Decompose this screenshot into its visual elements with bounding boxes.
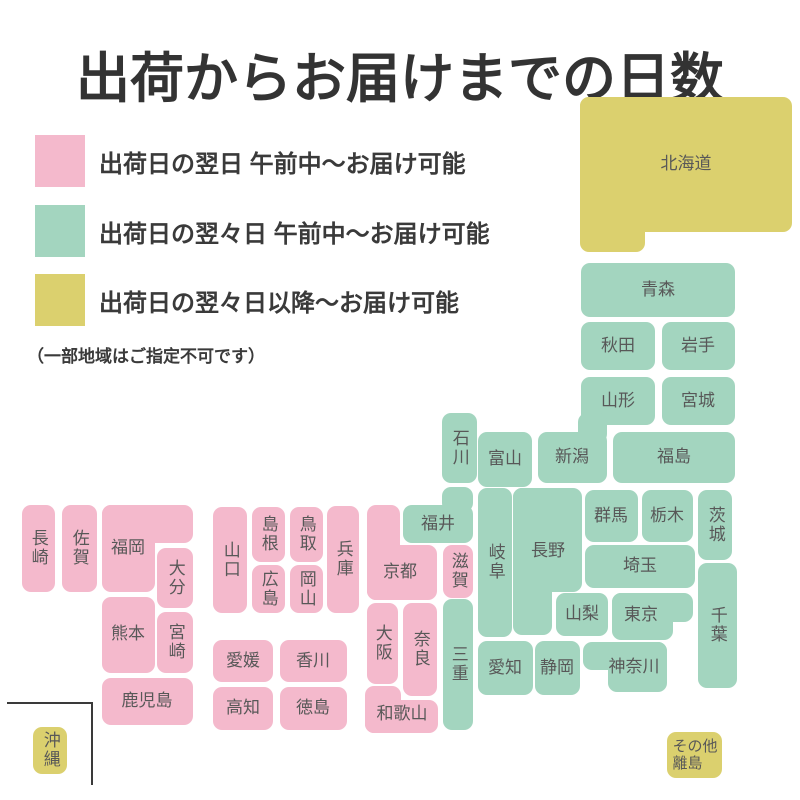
prefecture-tottori-label: 鳥取: [296, 515, 316, 553]
legend-label-two-days: 出荷日の翌々日 午前中〜お届け可能: [99, 214, 490, 249]
yellow-swatch-icon: [35, 274, 85, 326]
prefecture-nara-label: 奈良: [410, 630, 430, 668]
prefecture-kagoshima-label: 鹿児島: [122, 691, 173, 711]
prefecture-yamagata-label: 山形: [601, 391, 635, 411]
prefecture-hokkaido-shape: [580, 97, 645, 252]
prefecture-saga-label: 佐賀: [69, 529, 89, 567]
prefecture-ishikawa-label: 石川: [449, 429, 469, 467]
prefecture-mie-label: 三重: [448, 645, 468, 683]
prefecture-nagano-label: 長野: [531, 541, 565, 561]
shipping-days-infographic: 出荷からお届けまでの日数 出荷日の翌日 午前中〜お届け可能 出荷日の翌々日 午前…: [0, 0, 800, 800]
prefecture-ehime-label: 愛媛: [226, 651, 260, 671]
prefecture-tokushima-label: 徳島: [296, 698, 330, 718]
prefecture-akita-label: 秋田: [601, 336, 635, 356]
prefecture-iwate-label: 岩手: [681, 336, 715, 356]
prefecture-saitama-label: 埼玉: [623, 556, 657, 576]
legend-item-two-days-plus: 出荷日の翌々日以降〜お届け可能: [35, 274, 459, 326]
prefecture-hyogo-label: 兵庫: [333, 540, 353, 578]
legend-note: （一部地域はご指定不可です）: [27, 342, 265, 367]
prefecture-gunma-label: 群馬: [594, 506, 628, 526]
prefecture-hokkaido-label: 北海道: [661, 154, 712, 174]
prefecture-niigata-shape: [578, 413, 607, 443]
prefecture-ibaraki-label: 茨城: [705, 506, 725, 544]
prefecture-shizuoka-label: 静岡: [540, 658, 574, 678]
legend-label-two-days-plus: 出荷日の翌々日以降〜お届け可能: [99, 283, 459, 318]
prefecture-oita-label: 大分: [165, 559, 185, 597]
prefecture-fukui-shape: [442, 487, 473, 512]
prefecture-kanagawa-label: 神奈川: [609, 657, 660, 677]
prefecture-okayama-label: 岡山: [296, 570, 316, 608]
pink-swatch-icon: [35, 135, 85, 187]
prefecture-aichi-label: 愛知: [488, 658, 522, 678]
prefecture-aomori-label: 青森: [641, 280, 675, 300]
prefecture-fukuoka-label: 福岡: [111, 538, 145, 558]
prefecture-fukushima-label: 福島: [657, 447, 691, 467]
prefecture-hiroshima-label: 広島: [258, 570, 278, 608]
prefecture-fukui-label: 福井: [421, 514, 455, 534]
prefecture-nagano-shape: [513, 488, 552, 635]
prefecture-yamaguchi-label: 山口: [220, 541, 240, 579]
prefecture-shiga-label: 滋賀: [448, 552, 468, 590]
prefecture-gifu-label: 岐阜: [485, 543, 505, 581]
green-swatch-icon: [35, 205, 85, 257]
prefecture-miyazaki-label: 宮崎: [165, 623, 185, 661]
prefecture-other-islands-label: その他 離島: [672, 738, 717, 773]
prefecture-yamanashi-label: 山梨: [565, 604, 599, 624]
prefecture-toyama-label: 富山: [488, 449, 522, 469]
prefecture-nagasaki-label: 長崎: [28, 529, 48, 567]
okinawa-inset-frame: [7, 702, 93, 785]
prefecture-chiba-label: 千葉: [707, 606, 727, 644]
prefecture-osaka-label: 大阪: [372, 624, 392, 662]
prefecture-wakayama-label: 和歌山: [377, 704, 428, 724]
prefecture-kyoto-label: 京都: [383, 562, 417, 582]
prefecture-tokyo-label: 東京: [624, 605, 658, 625]
prefecture-kochi-label: 高知: [226, 698, 260, 718]
prefecture-miyagi-label: 宮城: [681, 391, 715, 411]
prefecture-tochigi-label: 栃木: [650, 506, 684, 526]
legend-label-next-day: 出荷日の翌日 午前中〜お届け可能: [99, 144, 466, 179]
legend-item-next-day: 出荷日の翌日 午前中〜お届け可能: [35, 135, 466, 187]
prefecture-shimane-label: 島根: [258, 515, 278, 553]
legend-item-two-days: 出荷日の翌々日 午前中〜お届け可能: [35, 205, 490, 257]
prefecture-niigata-label: 新潟: [555, 447, 589, 467]
prefecture-kagawa-label: 香川: [296, 651, 330, 671]
prefecture-kumamoto-label: 熊本: [111, 624, 145, 644]
